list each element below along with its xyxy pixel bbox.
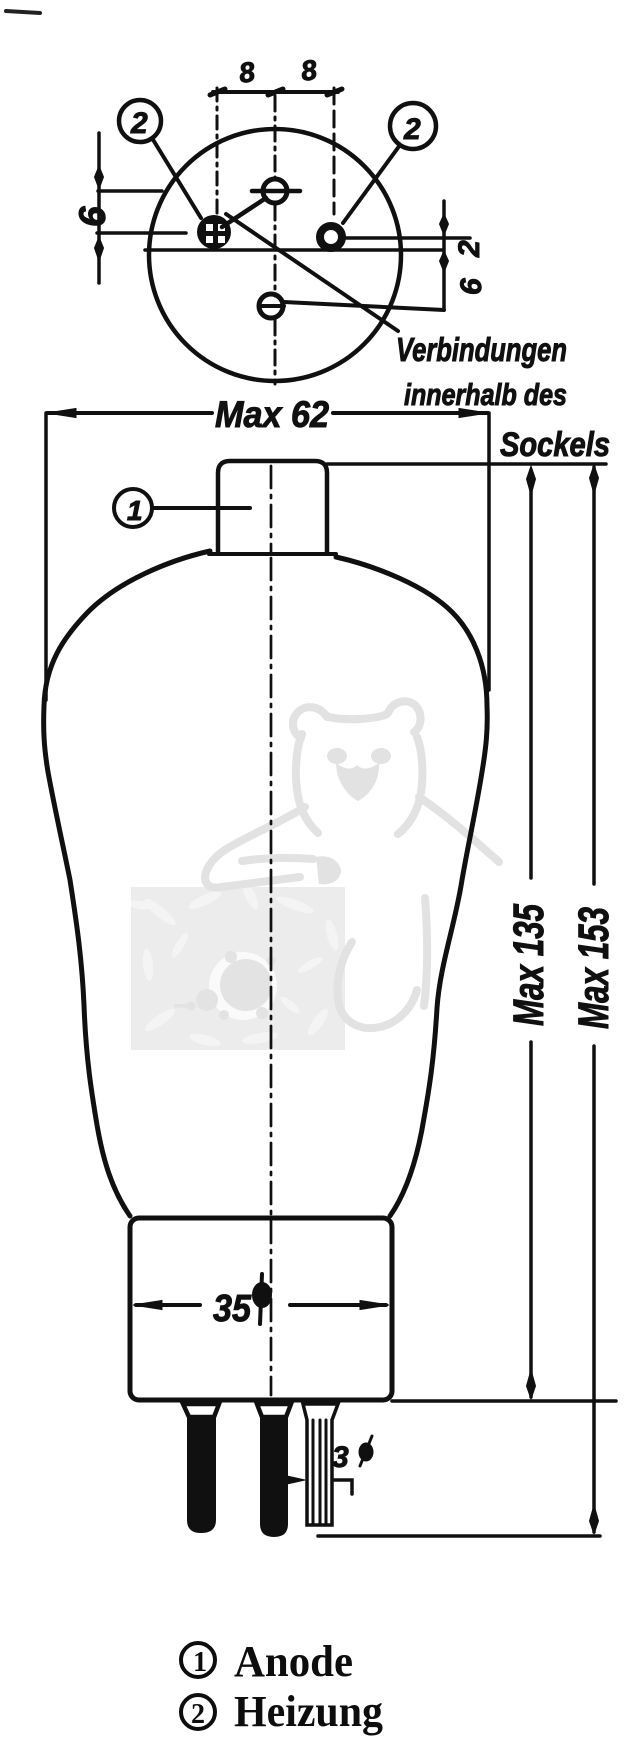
svg-text:2: 2 <box>453 240 486 258</box>
svg-text:2: 2 <box>191 1699 205 1730</box>
svg-text:Max 153: Max 153 <box>570 907 618 1029</box>
svg-text:1: 1 <box>193 1647 207 1678</box>
svg-text:6: 6 <box>72 206 113 227</box>
svg-text:8: 8 <box>299 54 319 87</box>
svg-text:8: 8 <box>237 56 257 89</box>
svg-text:Anode: Anode <box>234 1637 353 1686</box>
svg-text:2: 2 <box>130 107 148 140</box>
svg-text:6: 6 <box>455 278 488 295</box>
svg-text:Heizung: Heizung <box>234 1687 383 1736</box>
svg-text:Sockels: Sockels <box>500 426 610 464</box>
svg-text:Verbindungen: Verbindungen <box>396 331 567 368</box>
svg-text:Max 62: Max 62 <box>215 394 329 435</box>
svg-text:35: 35 <box>213 1288 252 1330</box>
svg-text:2: 2 <box>403 113 421 146</box>
svg-text:1: 1 <box>127 495 143 526</box>
svg-text:innerhalb des: innerhalb des <box>404 377 567 412</box>
svg-text:Max 135: Max 135 <box>505 903 553 1026</box>
svg-text:3: 3 <box>332 1441 349 1474</box>
